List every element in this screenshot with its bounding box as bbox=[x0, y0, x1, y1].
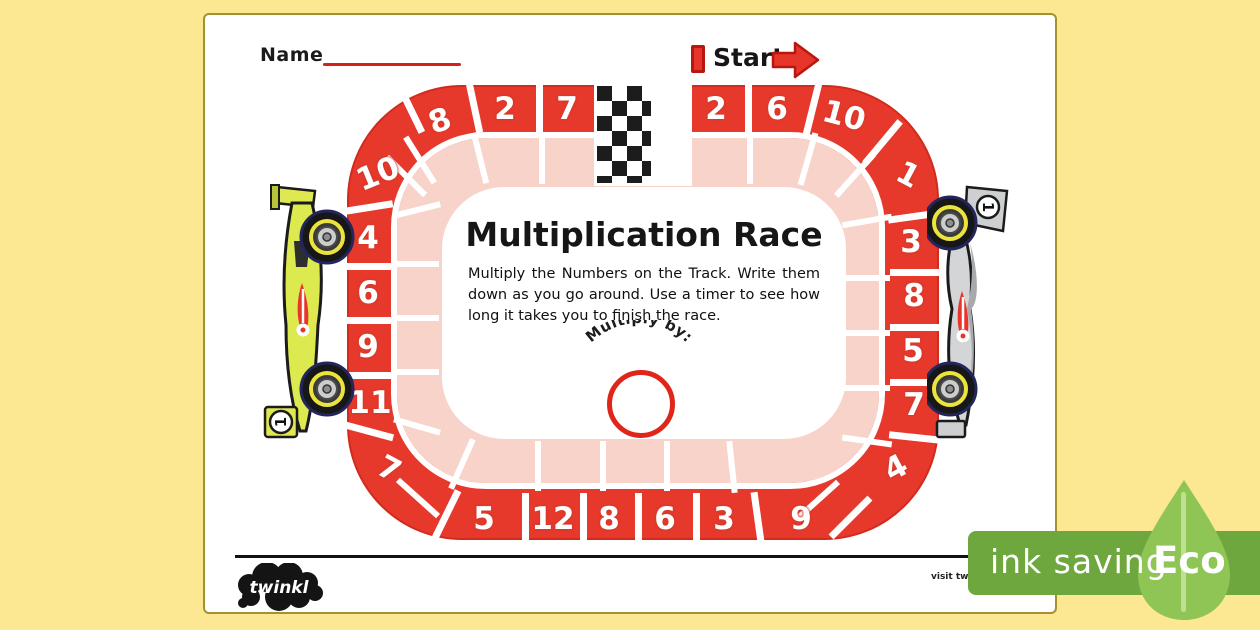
start-arrow-icon bbox=[771, 40, 821, 80]
footer-divider-line bbox=[235, 555, 1028, 558]
track-cell-number: 12 bbox=[531, 501, 574, 537]
twinkl-logo: twinkl bbox=[231, 563, 327, 613]
svg-text:twinkl: twinkl bbox=[250, 578, 310, 598]
yellow-race-car: 1 bbox=[263, 183, 357, 441]
track-cell-number: 5 bbox=[473, 501, 495, 537]
name-write-line bbox=[323, 63, 461, 66]
worksheet-title: Multiplication Race bbox=[442, 215, 846, 254]
ink-saving-label: ink saving bbox=[990, 531, 1168, 595]
silver-race-car: 1 bbox=[927, 183, 1015, 441]
svg-text:Multiply by:: Multiply by: bbox=[582, 320, 696, 346]
track-cell-number: 4 bbox=[357, 220, 379, 256]
track-cell-number: 5 bbox=[902, 333, 924, 369]
track-cell-number: 3 bbox=[713, 501, 735, 537]
track-cell-number: 9 bbox=[790, 501, 812, 537]
start-marker-rect bbox=[691, 45, 705, 73]
rear-wheel bbox=[927, 363, 976, 415]
track-cell-number: 6 bbox=[654, 501, 676, 537]
track-cell-number: 9 bbox=[357, 329, 379, 365]
track-cell-number: 2 bbox=[705, 91, 727, 127]
track-cell-number: 6 bbox=[766, 91, 788, 127]
finish-line-checkered-flag bbox=[594, 83, 654, 186]
track-cell-number: 8 bbox=[903, 278, 925, 314]
race-track: 2 6 10 1 3 8 5 7 4 9 3 6 8 12 5 7 11 9 6… bbox=[347, 85, 939, 540]
start-line-gap bbox=[652, 83, 692, 186]
eco-label: Eco bbox=[1153, 531, 1226, 595]
track-cell-number: 8 bbox=[598, 501, 620, 537]
track-cell-number: 6 bbox=[357, 275, 379, 311]
name-label: Name bbox=[260, 44, 323, 66]
track-cell-number: 2 bbox=[494, 91, 516, 127]
multiply-by-label: Multiply by: bbox=[554, 320, 724, 400]
car-number-badge: 1 bbox=[979, 202, 997, 212]
track-cell-number: 7 bbox=[556, 91, 578, 127]
car-number-badge: 1 bbox=[272, 417, 290, 427]
front-wheel bbox=[301, 363, 353, 415]
rear-wheel bbox=[301, 211, 353, 263]
track-cell-number: 7 bbox=[903, 387, 925, 423]
front-wheel bbox=[927, 197, 976, 249]
worksheet-page: Name Start bbox=[203, 13, 1057, 614]
worksheet-instructions: Multiply the Numbers on the Track. Write… bbox=[468, 264, 820, 327]
track-cell-number: 3 bbox=[900, 224, 922, 260]
worksheet-background: { "page": { "name_label": "Name", "start… bbox=[0, 0, 1260, 630]
